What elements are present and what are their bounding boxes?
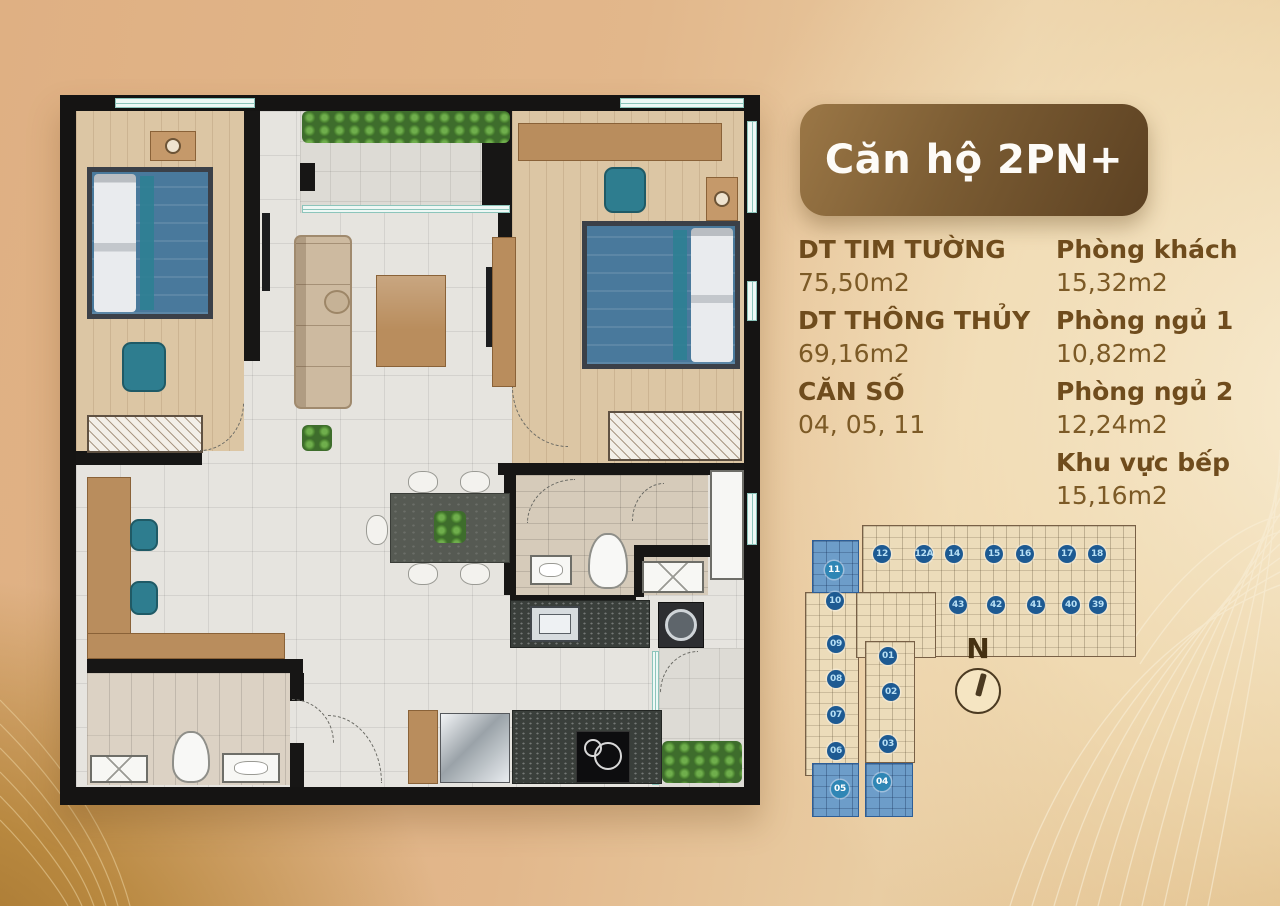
unit-badge-16: 16 <box>1016 545 1034 563</box>
unit-badge-11: 11 <box>825 561 843 579</box>
bathroom1-sink <box>530 555 572 585</box>
info-row: CĂN SỐ 04, 05, 11 <box>798 376 1058 441</box>
bathroom1-toilet <box>588 533 628 589</box>
window-right-bedroom2-upper <box>747 121 757 213</box>
unit-badge-42: 42 <box>987 596 1005 614</box>
kitchen-fridge <box>440 713 510 783</box>
kitchen-sink <box>530 606 580 642</box>
living-sofa <box>294 235 352 409</box>
info-label: Phòng ngủ 1 <box>1056 305 1280 338</box>
info-label: Phòng ngủ 2 <box>1056 376 1280 409</box>
kitchen-cooktop <box>576 731 630 783</box>
info-value: 75,50m2 <box>798 267 1058 300</box>
wall-bedroom1-right <box>244 111 260 361</box>
window-right-kitchen <box>747 493 757 545</box>
wall-bathroom2-top <box>87 659 303 673</box>
living-tv <box>486 267 492 347</box>
compass-needle <box>975 673 987 697</box>
unit-badge-43: 43 <box>949 596 967 614</box>
balcony-bottom-planter <box>662 741 742 783</box>
unit-badge-12: 12 <box>873 545 891 563</box>
info-label: Khu vực bếp <box>1056 447 1280 480</box>
living-tv-console <box>492 237 516 387</box>
dining-chair <box>460 471 490 493</box>
unit-badge-14: 14 <box>945 545 963 563</box>
compass-north-label: N <box>966 632 989 665</box>
living-ottoman <box>324 290 350 314</box>
unit-badge-10: 10 <box>826 592 844 610</box>
unit-badge-01: 01 <box>879 647 897 665</box>
wall-bathroom1-top <box>498 463 744 475</box>
info-right-column: Phòng khách 15,32m2 Phòng ngủ 1 10,82m2 … <box>1056 234 1280 518</box>
bench-cushion <box>130 519 158 551</box>
bathroom2-shower <box>90 755 148 783</box>
wall-bathroom2-right-lower <box>290 743 304 787</box>
balcony-grill <box>300 163 315 191</box>
unit-badge-06: 06 <box>827 742 845 760</box>
apartment-type-title: Căn hộ 2PN+ <box>825 137 1123 183</box>
page: Căn hộ 2PN+ DT TIM TƯỜNG 75,50m2 DT THÔN… <box>0 0 1280 906</box>
wall-laundry-top <box>634 545 710 557</box>
window-top-bedroom1 <box>115 98 255 108</box>
bedroom1-armchair <box>122 342 166 392</box>
info-value: 12,24m2 <box>1056 409 1280 442</box>
unit-badge-15: 15 <box>985 545 1003 563</box>
unit-badge-39: 39 <box>1089 596 1107 614</box>
bench-vertical <box>87 477 131 657</box>
balcony-top-planter <box>302 111 510 143</box>
dining-centerpiece-plant <box>434 511 466 543</box>
info-left-column: DT TIM TƯỜNG 75,50m2 DT THÔNG THỦY 69,16… <box>798 234 1058 447</box>
info-row: Khu vực bếp 15,16m2 <box>1056 447 1280 512</box>
bedroom1-nightstand <box>150 131 196 161</box>
dining-chair <box>408 471 438 493</box>
info-label: CĂN SỐ <box>798 376 1058 409</box>
kitchen-cabinet-wood <box>408 710 438 784</box>
bedroom2-wardrobe <box>608 411 742 461</box>
bedroom2-nightstand <box>706 177 738 221</box>
bathroom1-shower <box>642 561 704 593</box>
info-label: DT TIM TƯỜNG <box>798 234 1058 267</box>
unit-badge-05: 05 <box>831 780 849 798</box>
unit-badge-12A: 12A <box>915 545 933 563</box>
wall-bedroom1-bottom <box>76 451 202 465</box>
wall-bathroom2-right-upper <box>290 673 304 701</box>
unit-badge-08: 08 <box>827 670 845 688</box>
unit-badge-07: 07 <box>827 706 845 724</box>
unit-badge-09: 09 <box>827 635 845 653</box>
info-value: 04, 05, 11 <box>798 409 1058 442</box>
info-row: Phòng khách 15,32m2 <box>1056 234 1280 299</box>
floor-plan <box>60 95 760 805</box>
bedroom1-wardrobe <box>87 415 203 453</box>
bathroom2-sink <box>222 753 280 783</box>
info-value: 10,82m2 <box>1056 338 1280 371</box>
bedroom2-bed <box>582 221 740 369</box>
living-plant <box>302 425 332 451</box>
dining-chair <box>366 515 388 545</box>
window-top-bedroom2 <box>620 98 744 108</box>
info-value: 15,32m2 <box>1056 267 1280 300</box>
washing-machine <box>658 602 704 648</box>
info-value: 69,16m2 <box>798 338 1058 371</box>
info-row: Phòng ngủ 2 12,24m2 <box>1056 376 1280 441</box>
living-coffee-table <box>376 275 446 367</box>
info-row: Phòng ngủ 1 10,82m2 <box>1056 305 1280 370</box>
unit-badge-18: 18 <box>1088 545 1106 563</box>
info-row: DT THÔNG THỦY 69,16m2 <box>798 305 1058 370</box>
unit-badge-03: 03 <box>879 735 897 753</box>
window-balcony-slider <box>302 205 510 213</box>
info-label: Phòng khách <box>1056 234 1280 267</box>
unit-badge-41: 41 <box>1027 596 1045 614</box>
compass-dial <box>955 668 1001 714</box>
bench-cushion <box>130 581 158 615</box>
unit-badge-02: 02 <box>882 683 900 701</box>
dining-chair <box>408 563 438 585</box>
bedroom1-wall-tv <box>262 213 270 291</box>
bedroom1-bed <box>87 167 213 319</box>
bedroom2-chair <box>604 167 646 213</box>
unit-badge-17: 17 <box>1058 545 1076 563</box>
apartment-type-badge: Căn hộ 2PN+ <box>800 104 1148 216</box>
compass: N <box>938 632 1018 724</box>
unit-badge-04: 04 <box>873 773 891 791</box>
info-label: DT THÔNG THỦY <box>798 305 1058 338</box>
bench-horizontal <box>87 633 285 659</box>
dining-chair <box>460 563 490 585</box>
unit-badge-40: 40 <box>1062 596 1080 614</box>
bedroom2-desk <box>518 123 722 161</box>
kitchen-counter-right <box>710 470 744 580</box>
bathroom2-toilet <box>172 731 210 783</box>
info-row: DT TIM TƯỜNG 75,50m2 <box>798 234 1058 299</box>
window-right-bedroom2-lower <box>747 281 757 321</box>
